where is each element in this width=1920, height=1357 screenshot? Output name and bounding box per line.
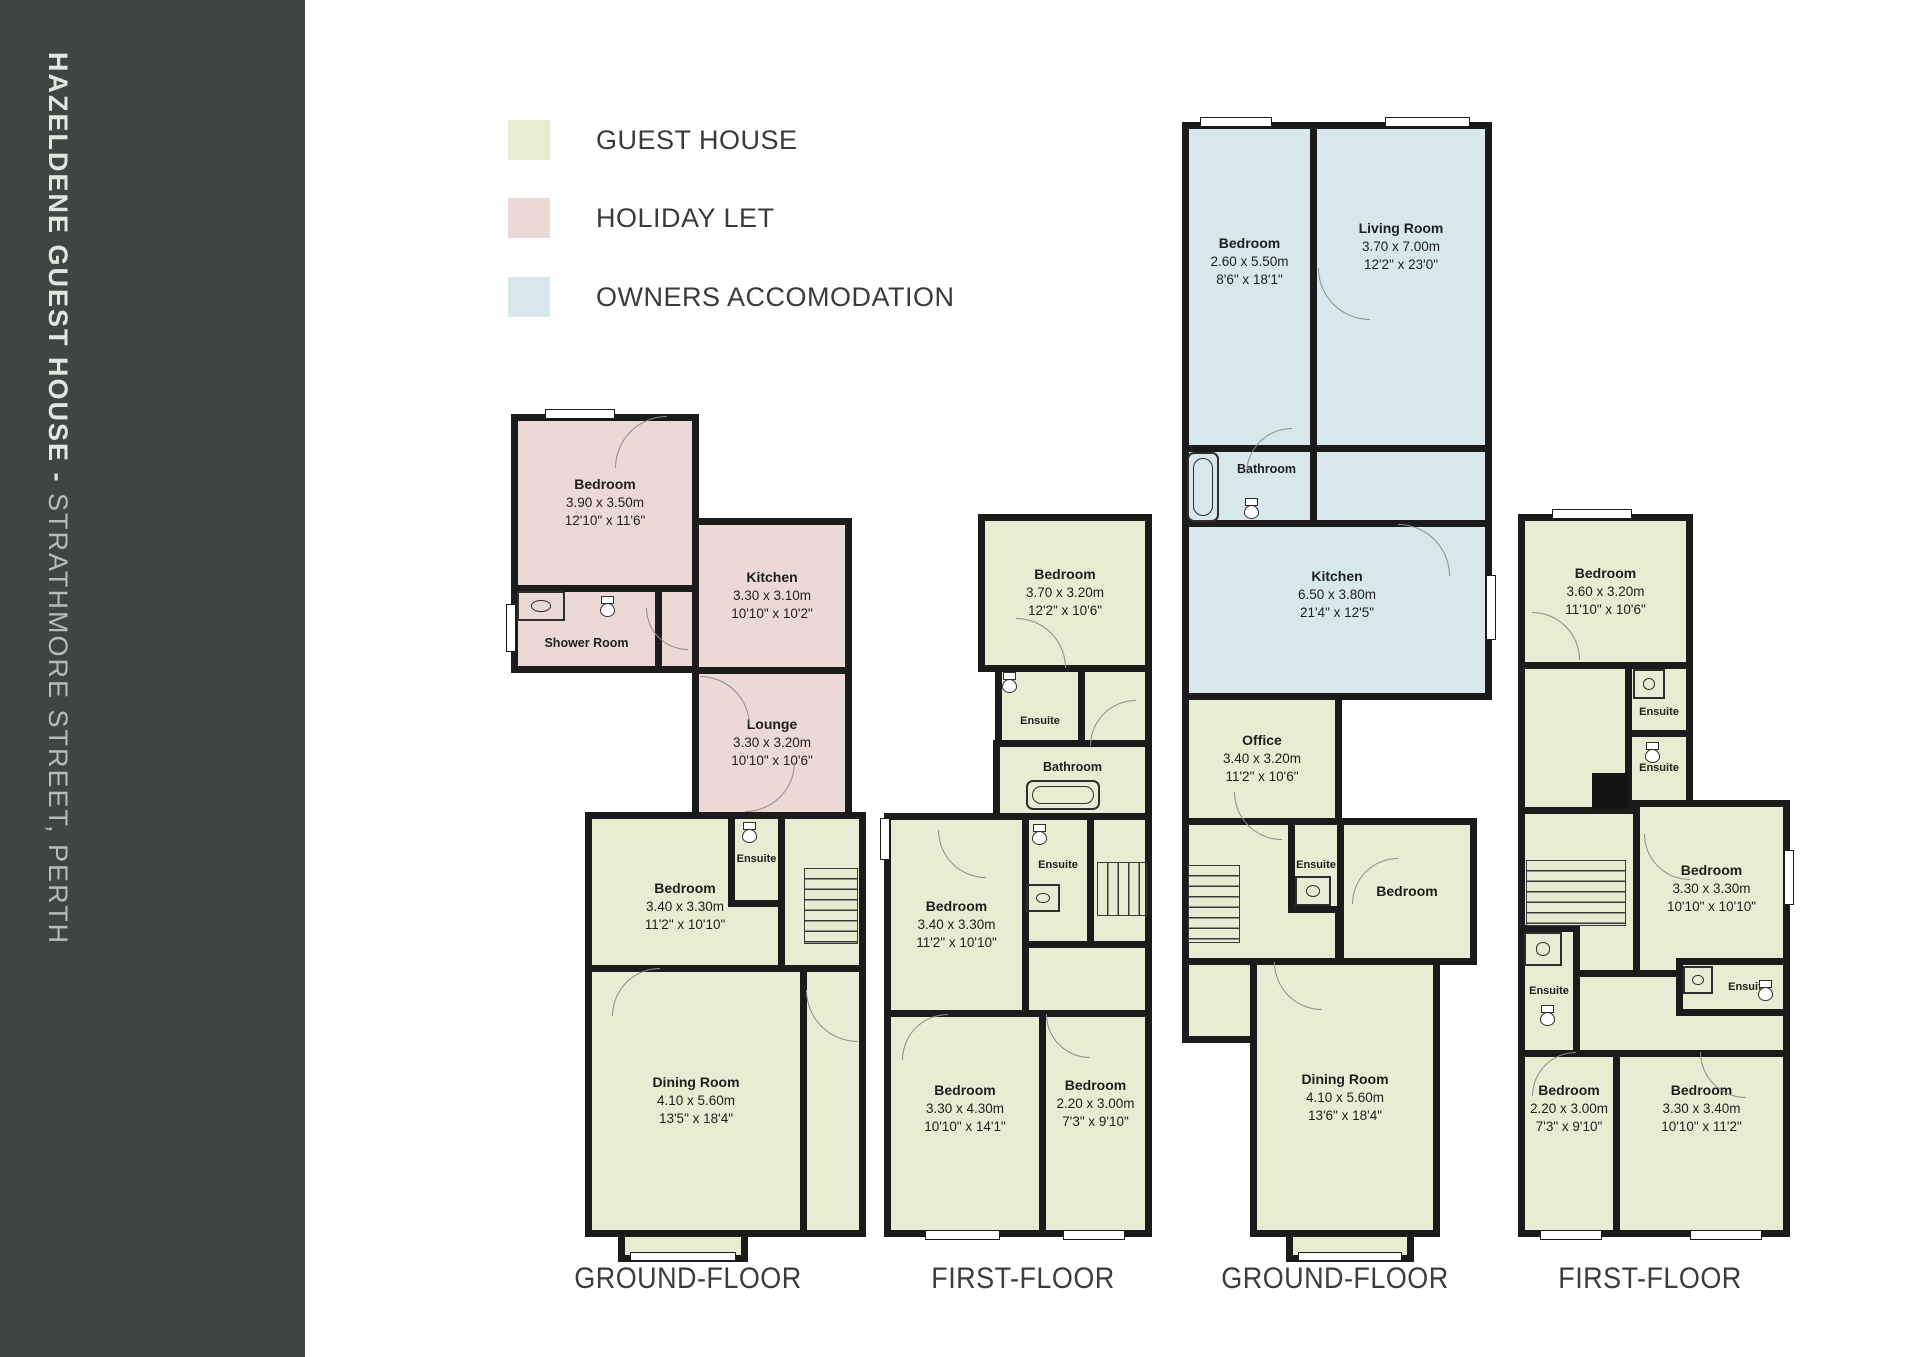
floor-label: FIRST-FLOOR bbox=[1558, 1262, 1741, 1296]
toilet-icon bbox=[1540, 1005, 1555, 1026]
window bbox=[1552, 509, 1632, 519]
title-sidebar: HAZELDENE GUEST HOUSE - STRATHMORE STREE… bbox=[0, 0, 305, 1357]
room-bedroom: Bedroom 3.30 x 3.40m 10'10" x 11'2" bbox=[1613, 1050, 1790, 1237]
window bbox=[1784, 850, 1794, 905]
room-kitchen: Kitchen 6.50 x 3.80m 21'4" x 12'5" bbox=[1182, 520, 1492, 700]
stairs bbox=[1188, 865, 1240, 943]
shower-icon bbox=[1026, 884, 1060, 912]
guest-house-label: GUEST HOUSE bbox=[596, 125, 798, 156]
legend-item-guest-house: GUEST HOUSE bbox=[508, 120, 798, 160]
floor-label: GROUND-FLOOR bbox=[1221, 1262, 1448, 1296]
owners-accomodation-swatch bbox=[508, 277, 550, 317]
holiday-let-swatch bbox=[508, 198, 550, 238]
holiday-let-label: HOLIDAY LET bbox=[596, 203, 775, 234]
window bbox=[1385, 117, 1470, 127]
shower-icon bbox=[1524, 932, 1562, 966]
toilet-icon bbox=[1244, 498, 1259, 519]
toilet-icon bbox=[1002, 672, 1017, 693]
window bbox=[880, 818, 890, 860]
legend-item-owners-accomodation: OWNERS ACCOMODATION bbox=[508, 277, 955, 317]
bathtub-icon bbox=[1026, 780, 1100, 810]
shower-icon bbox=[1683, 966, 1713, 994]
toilet-icon bbox=[1758, 980, 1773, 1001]
owners-accomodation-label: OWNERS ACCOMODATION bbox=[596, 282, 955, 313]
floor-label: FIRST-FLOOR bbox=[931, 1262, 1114, 1296]
room-bedroom: Bedroom 3.70 x 3.20m 12'2" x 10'6" bbox=[978, 514, 1152, 672]
property-address: STRATHMORE STREET, PERTH bbox=[43, 493, 73, 945]
stairs bbox=[1526, 860, 1626, 926]
window bbox=[630, 1252, 736, 1261]
floorplan-sheet: HAZELDENE GUEST HOUSE - STRATHMORE STREE… bbox=[0, 0, 1920, 1357]
window bbox=[1200, 117, 1272, 127]
property-name: HAZELDENE GUEST HOUSE - bbox=[43, 52, 73, 493]
stairs bbox=[1097, 862, 1147, 916]
stairs bbox=[804, 868, 858, 944]
room-bedroom: Bedroom 2.60 x 5.50m 8'6" x 18'1" bbox=[1182, 122, 1317, 452]
floor-label: GROUND-FLOOR bbox=[574, 1262, 801, 1296]
legend-item-holiday-let: HOLIDAY LET bbox=[508, 198, 775, 238]
window bbox=[1486, 575, 1496, 640]
shower-icon bbox=[1633, 669, 1665, 699]
window bbox=[1298, 1252, 1402, 1261]
window bbox=[1063, 1230, 1125, 1240]
room-kitchen: Kitchen 3.30 x 3.10m 10'10" x 10'2" bbox=[692, 518, 852, 674]
room-bedroom: Bedroom 3.90 x 3.50m 12'10" x 11'6" bbox=[511, 414, 699, 592]
window bbox=[1690, 1230, 1762, 1240]
room-bedroom: Bedroom 3.30 x 3.30m 10'10" x 10'10" bbox=[1633, 800, 1790, 977]
hallway bbox=[1310, 445, 1492, 527]
window bbox=[925, 1230, 1000, 1240]
room-bedroom: Bedroom 2.20 x 3.00m 7'3" x 9'10" bbox=[1039, 1010, 1152, 1237]
window bbox=[1540, 1230, 1602, 1240]
guest-house-swatch bbox=[508, 120, 550, 160]
hallway bbox=[1022, 941, 1152, 1018]
window bbox=[506, 604, 516, 652]
toilet-icon bbox=[1645, 742, 1660, 763]
property-title: HAZELDENE GUEST HOUSE - STRATHMORE STREE… bbox=[42, 52, 73, 945]
shower-icon bbox=[1295, 876, 1331, 906]
window bbox=[545, 409, 615, 419]
room-dining-room: Dining Room 4.10 x 5.60m 13'6" x 18'4" bbox=[1250, 958, 1440, 1237]
solid-wall-block bbox=[1592, 773, 1628, 809]
toilet-icon bbox=[1032, 824, 1047, 845]
bathtub-icon bbox=[1187, 452, 1219, 522]
toilet-icon bbox=[600, 596, 615, 617]
toilet-icon bbox=[742, 822, 757, 843]
hallway bbox=[1182, 958, 1257, 1043]
shower-icon bbox=[517, 591, 565, 621]
